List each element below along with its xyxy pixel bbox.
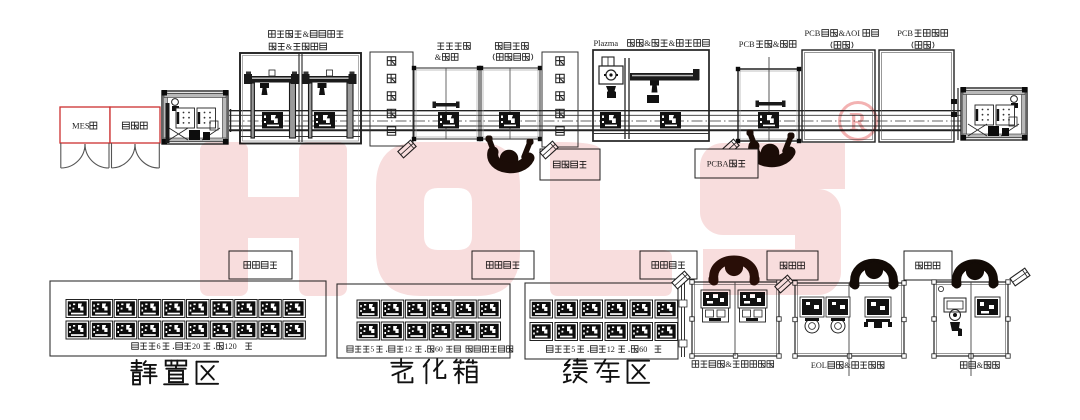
svg-text:R: R [850,109,867,136]
